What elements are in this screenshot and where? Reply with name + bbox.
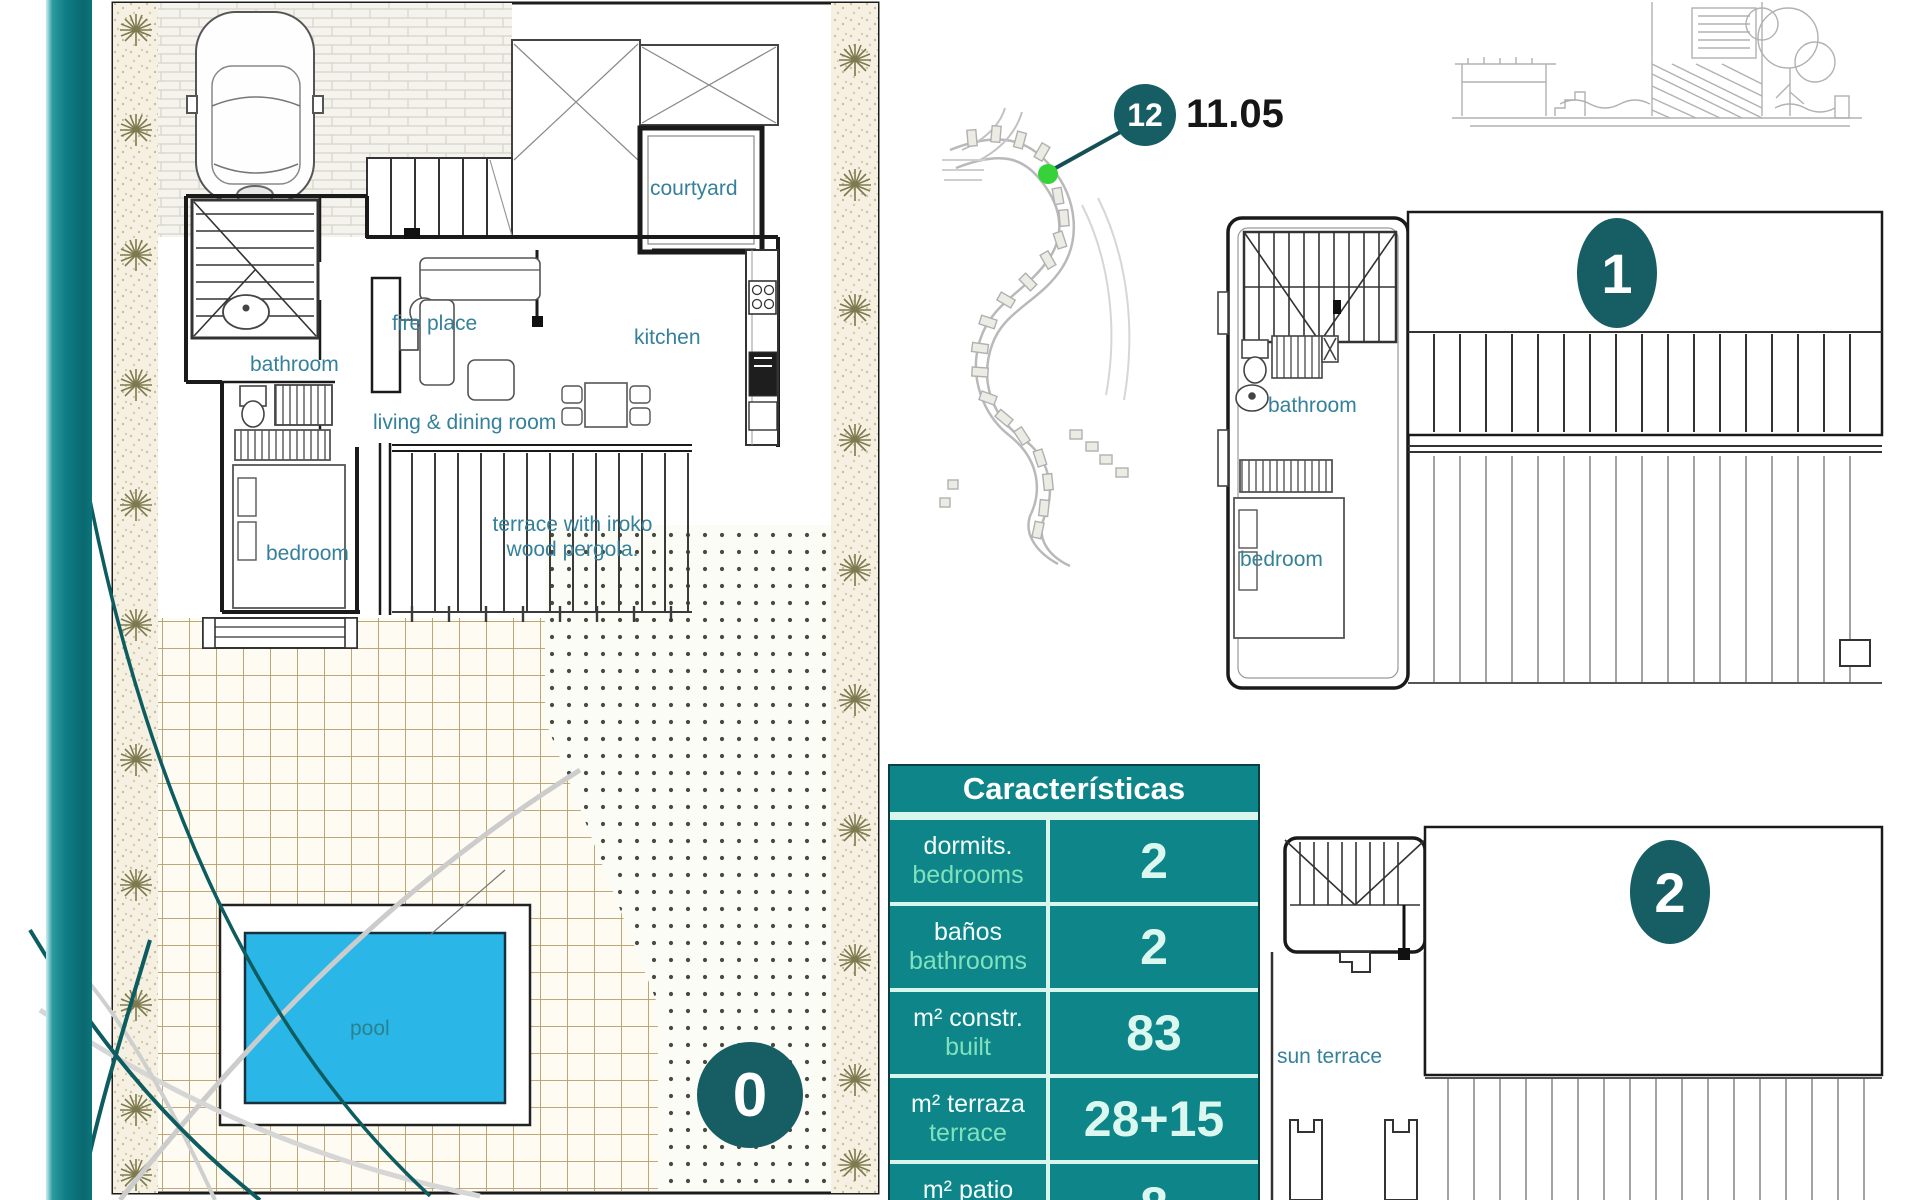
side-accent-bar bbox=[46, 0, 92, 1200]
floor-badge-0: 0 bbox=[697, 1042, 803, 1148]
bench bbox=[203, 618, 357, 648]
label-terrace-line1: terrace with iroko bbox=[465, 512, 680, 537]
row-label-es: dormits. bbox=[924, 832, 1013, 861]
label-bedroom-floor1: bedroom bbox=[1240, 547, 1323, 572]
characteristics-title: Características bbox=[890, 766, 1258, 816]
label-courtyard: courtyard bbox=[650, 176, 738, 201]
entry-stairs bbox=[367, 158, 512, 238]
table-row-built: m² constr. built 83 bbox=[890, 988, 1258, 1074]
kitchen-fixtures bbox=[746, 250, 778, 445]
floor-badge-1: 1 bbox=[1577, 218, 1657, 328]
label-terrace: terrace with iroko wood pergola. bbox=[465, 512, 680, 562]
row-label-en: built bbox=[945, 1033, 991, 1062]
label-living-dining: living & dining room bbox=[373, 410, 556, 435]
row-value: 8 bbox=[1050, 1164, 1258, 1200]
label-bathroom-ground: bathroom bbox=[250, 352, 339, 377]
label-terrace-line2: wood pergola. bbox=[465, 537, 680, 562]
pool bbox=[220, 870, 530, 1125]
row-value: 28+15 bbox=[1050, 1078, 1258, 1160]
row-label-en: bathrooms bbox=[909, 947, 1027, 976]
callout-line bbox=[1052, 130, 1124, 170]
label-kitchen: kitchen bbox=[634, 325, 701, 350]
elevation-sketch bbox=[1452, 2, 1862, 126]
row-value: 2 bbox=[1050, 906, 1258, 988]
floorplan-sheet: courtyard fire place kitchen bathroom li… bbox=[0, 0, 1920, 1200]
row-label-es: m² constr. bbox=[913, 1004, 1023, 1033]
characteristics-table: Características dormits. bedrooms 2 baño… bbox=[888, 764, 1260, 1200]
label-bedroom-ground: bedroom bbox=[266, 541, 349, 566]
plot-elevation-value: 11.05 bbox=[1186, 92, 1284, 137]
label-bathroom-floor1: bathroom bbox=[1268, 393, 1357, 418]
label-sun-terrace: sun terrace bbox=[1277, 1044, 1382, 1069]
row-label-es: m² terraza bbox=[911, 1090, 1025, 1119]
bedroom-furniture bbox=[233, 430, 345, 608]
label-pool: pool bbox=[350, 1016, 390, 1041]
row-label-en: bedrooms bbox=[912, 861, 1023, 890]
row-label-es: m² patio bbox=[923, 1176, 1013, 1200]
label-fire-place: fire place bbox=[392, 311, 477, 336]
row-value: 83 bbox=[1050, 992, 1258, 1074]
table-row-bedrooms: dormits. bedrooms 2 bbox=[890, 816, 1258, 902]
site-map bbox=[940, 108, 1129, 566]
table-row-bathrooms: baños bathrooms 2 bbox=[890, 902, 1258, 988]
row-label-en: terrace bbox=[929, 1119, 1007, 1148]
floor-2-plan bbox=[1272, 827, 1882, 1200]
car bbox=[187, 12, 323, 204]
plot-ground-floor bbox=[30, 3, 878, 1200]
table-row-terrace: m² terraza terrace 28+15 bbox=[890, 1074, 1258, 1160]
site-plots bbox=[940, 126, 1128, 539]
plot-marker-dot bbox=[1038, 164, 1058, 184]
floor-badge-2: 2 bbox=[1630, 840, 1710, 944]
row-value: 2 bbox=[1050, 820, 1258, 902]
floor-1-plan bbox=[1218, 212, 1882, 688]
plot-number-badge: 12 bbox=[1114, 84, 1176, 146]
row-label-es: baños bbox=[934, 918, 1002, 947]
table-row-courtyard: m² patio courtyard 8 bbox=[890, 1160, 1258, 1200]
